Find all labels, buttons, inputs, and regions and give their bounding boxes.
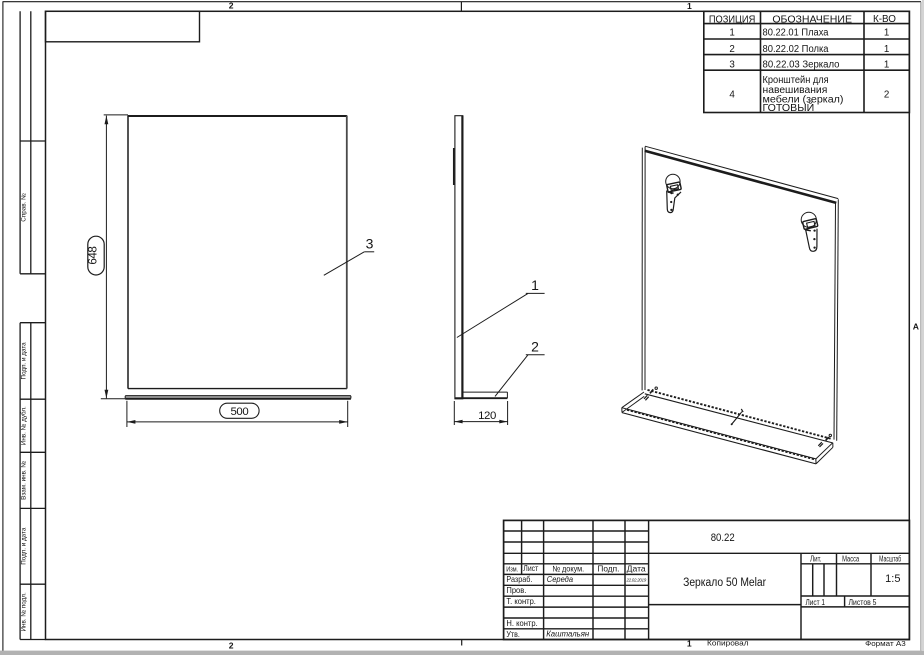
svg-text:Середа: Середа bbox=[547, 574, 574, 584]
svg-text:Т. контр.: Т. контр. bbox=[506, 597, 536, 606]
svg-text:Н. контр.: Н. контр. bbox=[506, 619, 537, 628]
svg-text:2: 2 bbox=[884, 90, 889, 101]
svg-text:Справ. №: Справ. № bbox=[21, 193, 28, 222]
svg-text:Лист: Лист bbox=[523, 564, 538, 573]
svg-text:ГОТОВЫЙ: ГОТОВЫЙ bbox=[763, 102, 815, 114]
svg-text:Зеркало 50 Melar: Зеркало 50 Melar bbox=[683, 577, 766, 589]
svg-text:Подп. и дата: Подп. и дата bbox=[21, 527, 28, 565]
svg-text:Инв. № дубл.: Инв. № дубл. bbox=[20, 406, 28, 445]
svg-text:1:5: 1:5 bbox=[885, 573, 900, 585]
svg-text:1: 1 bbox=[884, 27, 889, 38]
svg-text:Разраб.: Разраб. bbox=[506, 575, 532, 584]
svg-text:Лист 1: Лист 1 bbox=[806, 598, 826, 607]
svg-text:Взам. инв. №: Взам. инв. № bbox=[21, 461, 28, 500]
svg-text:Формат А3: Формат А3 bbox=[865, 639, 906, 648]
svg-text:К-ВО: К-ВО bbox=[873, 14, 896, 25]
svg-text:2: 2 bbox=[531, 339, 539, 355]
svg-text:3: 3 bbox=[729, 59, 735, 70]
svg-text:1: 1 bbox=[884, 44, 889, 55]
svg-text:3: 3 bbox=[366, 235, 374, 251]
svg-text:Масса: Масса bbox=[842, 554, 860, 563]
svg-text:Инв. № подл.: Инв. № подл. bbox=[21, 592, 28, 631]
svg-text:1: 1 bbox=[531, 277, 539, 293]
svg-text:80.22.01 Плаха: 80.22.01 Плаха bbox=[763, 27, 830, 38]
svg-text:Копировал: Копировал bbox=[707, 638, 749, 647]
svg-text:№ докум.: № докум. bbox=[552, 564, 584, 573]
svg-text:1: 1 bbox=[884, 59, 889, 70]
svg-text:1: 1 bbox=[687, 1, 692, 11]
svg-text:2: 2 bbox=[229, 641, 234, 651]
svg-text:ПОЗИЦИЯ: ПОЗИЦИЯ bbox=[709, 14, 756, 25]
svg-text:Изм.: Изм. bbox=[506, 564, 518, 573]
svg-text:ОБОЗНАЧЕНИЕ: ОБОЗНАЧЕНИЕ bbox=[772, 14, 852, 25]
svg-text:22.02.2019: 22.02.2019 bbox=[626, 578, 647, 583]
svg-text:2: 2 bbox=[229, 1, 234, 11]
svg-text:648: 648 bbox=[86, 247, 99, 265]
svg-text:Лит.: Лит. bbox=[810, 554, 822, 563]
svg-text:Подп.: Подп. bbox=[597, 564, 619, 573]
svg-text:4: 4 bbox=[729, 90, 735, 101]
svg-text:80.22: 80.22 bbox=[711, 532, 735, 544]
svg-text:1: 1 bbox=[729, 27, 734, 38]
svg-text:Подп. и дата: Подп. и дата bbox=[21, 342, 28, 380]
svg-text:120: 120 bbox=[478, 410, 496, 422]
svg-text:Пров.: Пров. bbox=[506, 586, 526, 595]
svg-text:80.22.03 Зеркало: 80.22.03 Зеркало bbox=[763, 59, 841, 70]
svg-text:Листов 5: Листов 5 bbox=[849, 598, 878, 607]
svg-text:500: 500 bbox=[230, 406, 248, 418]
svg-text:Масштаб: Масштаб bbox=[879, 554, 901, 563]
svg-text:Дата: Дата bbox=[627, 564, 646, 573]
svg-text:A: A bbox=[913, 322, 919, 332]
svg-text:80.22.02 Полка: 80.22.02 Полка bbox=[763, 44, 830, 55]
svg-text:Каштальян: Каштальян bbox=[546, 629, 589, 639]
svg-text:Утв.: Утв. bbox=[506, 630, 519, 639]
svg-text:2: 2 bbox=[729, 44, 734, 55]
